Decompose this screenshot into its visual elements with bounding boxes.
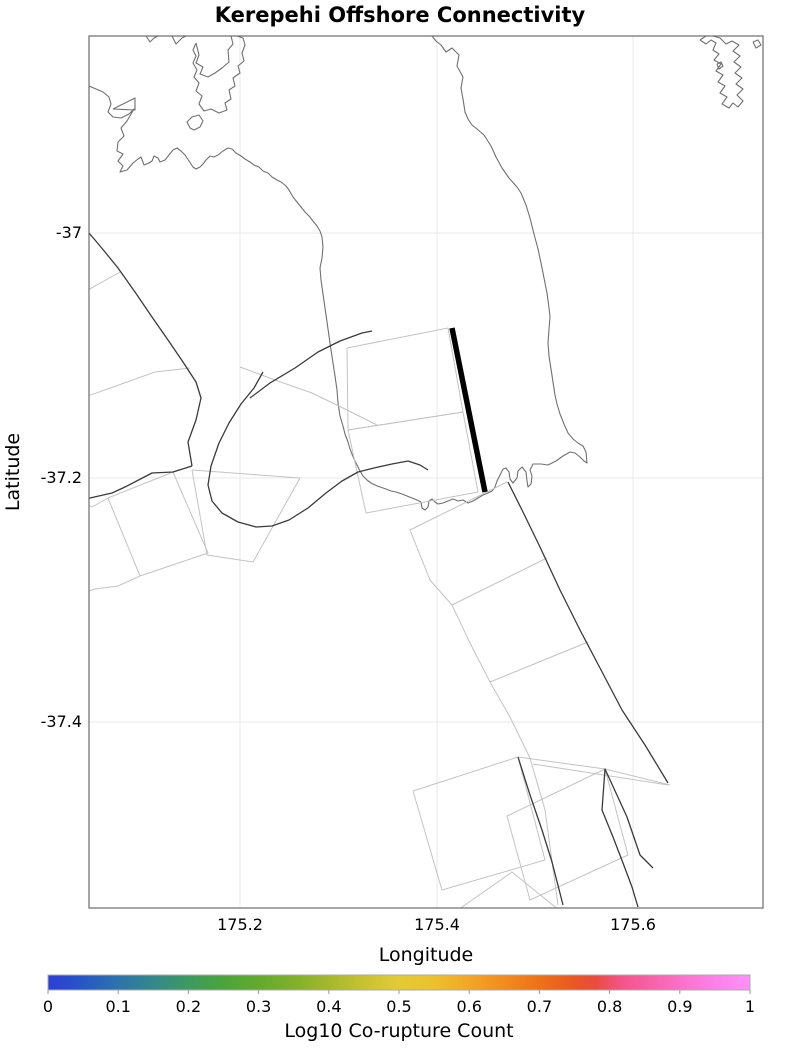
fault-polygon-light	[88, 368, 190, 396]
fault-polygon-light	[413, 757, 545, 890]
coastline-path	[113, 98, 135, 110]
colorbar-tick-label: 0	[43, 997, 53, 1016]
x-tick-label: 175.2	[217, 915, 263, 934]
map-content	[85, 36, 761, 958]
axis-tick-labels: 175.2175.4175.6-37-37.2-37.4	[41, 223, 656, 934]
plot-frame	[89, 36, 763, 908]
colorbar-tick-label: 0.3	[246, 997, 271, 1016]
fault-trace-dark	[208, 372, 428, 527]
fault-polygon-light	[85, 576, 140, 592]
coastline-path	[89, 36, 587, 510]
colorbar-gradient-bar	[48, 975, 750, 990]
fault-polygon-light	[507, 769, 628, 900]
figure-title: Kerepehi Offshore Connectivity	[215, 3, 586, 27]
fault-polygon-light	[410, 530, 558, 905]
y-axis-label: Latitude	[2, 433, 24, 511]
colorbar-tick-label: 0.7	[527, 997, 552, 1016]
coastline-path	[146, 36, 158, 42]
colorbar-label: Log10 Co-rupture Count	[284, 1020, 513, 1042]
fault-trace-dark	[508, 482, 668, 783]
colorbar-tick-label: 1	[745, 997, 755, 1016]
fault-polygon-light	[410, 482, 507, 530]
coastline-path	[753, 40, 761, 48]
fault-polygon-light	[490, 642, 588, 682]
fault-polygon-light	[88, 272, 120, 290]
fault-trace-dark	[250, 331, 372, 398]
coastline-path	[172, 36, 186, 44]
x-axis-label: Longitude	[379, 944, 474, 966]
coastline-path	[700, 36, 743, 108]
fault-polygon-light	[533, 764, 668, 785]
colorbar-tick-label: 0.1	[105, 997, 130, 1016]
x-tick-label: 175.6	[610, 915, 656, 934]
colorbar-tick-label: 0.5	[386, 997, 411, 1016]
fault-trace-dark	[85, 466, 192, 500]
fault-polygon-light	[518, 757, 670, 785]
grid-lines	[89, 36, 763, 908]
colorbar-tick-label: 0.2	[176, 997, 201, 1016]
colorbar-tick-label: 0.8	[597, 997, 622, 1016]
coastline-path	[187, 115, 203, 130]
coastline-path	[193, 36, 245, 113]
y-tick-label: -37.4	[41, 712, 82, 731]
fault-polygon-light	[452, 558, 547, 605]
y-tick-label: -37.2	[41, 468, 82, 487]
colorbar-tick-label: 0.4	[316, 997, 341, 1016]
colorbar: 00.10.20.30.40.50.60.70.80.91	[43, 975, 755, 1016]
fault-trace-dark	[88, 232, 201, 466]
highlighted-fault-segment	[452, 328, 485, 492]
x-tick-label: 175.4	[414, 915, 460, 934]
y-tick-label: -37	[56, 223, 82, 242]
colorbar-tick-label: 0.6	[456, 997, 481, 1016]
map-figure: 175.2175.4175.6-37-37.2-37.4 Kerepehi Of…	[0, 0, 800, 1055]
colorbar-tick-label: 0.9	[667, 997, 692, 1016]
